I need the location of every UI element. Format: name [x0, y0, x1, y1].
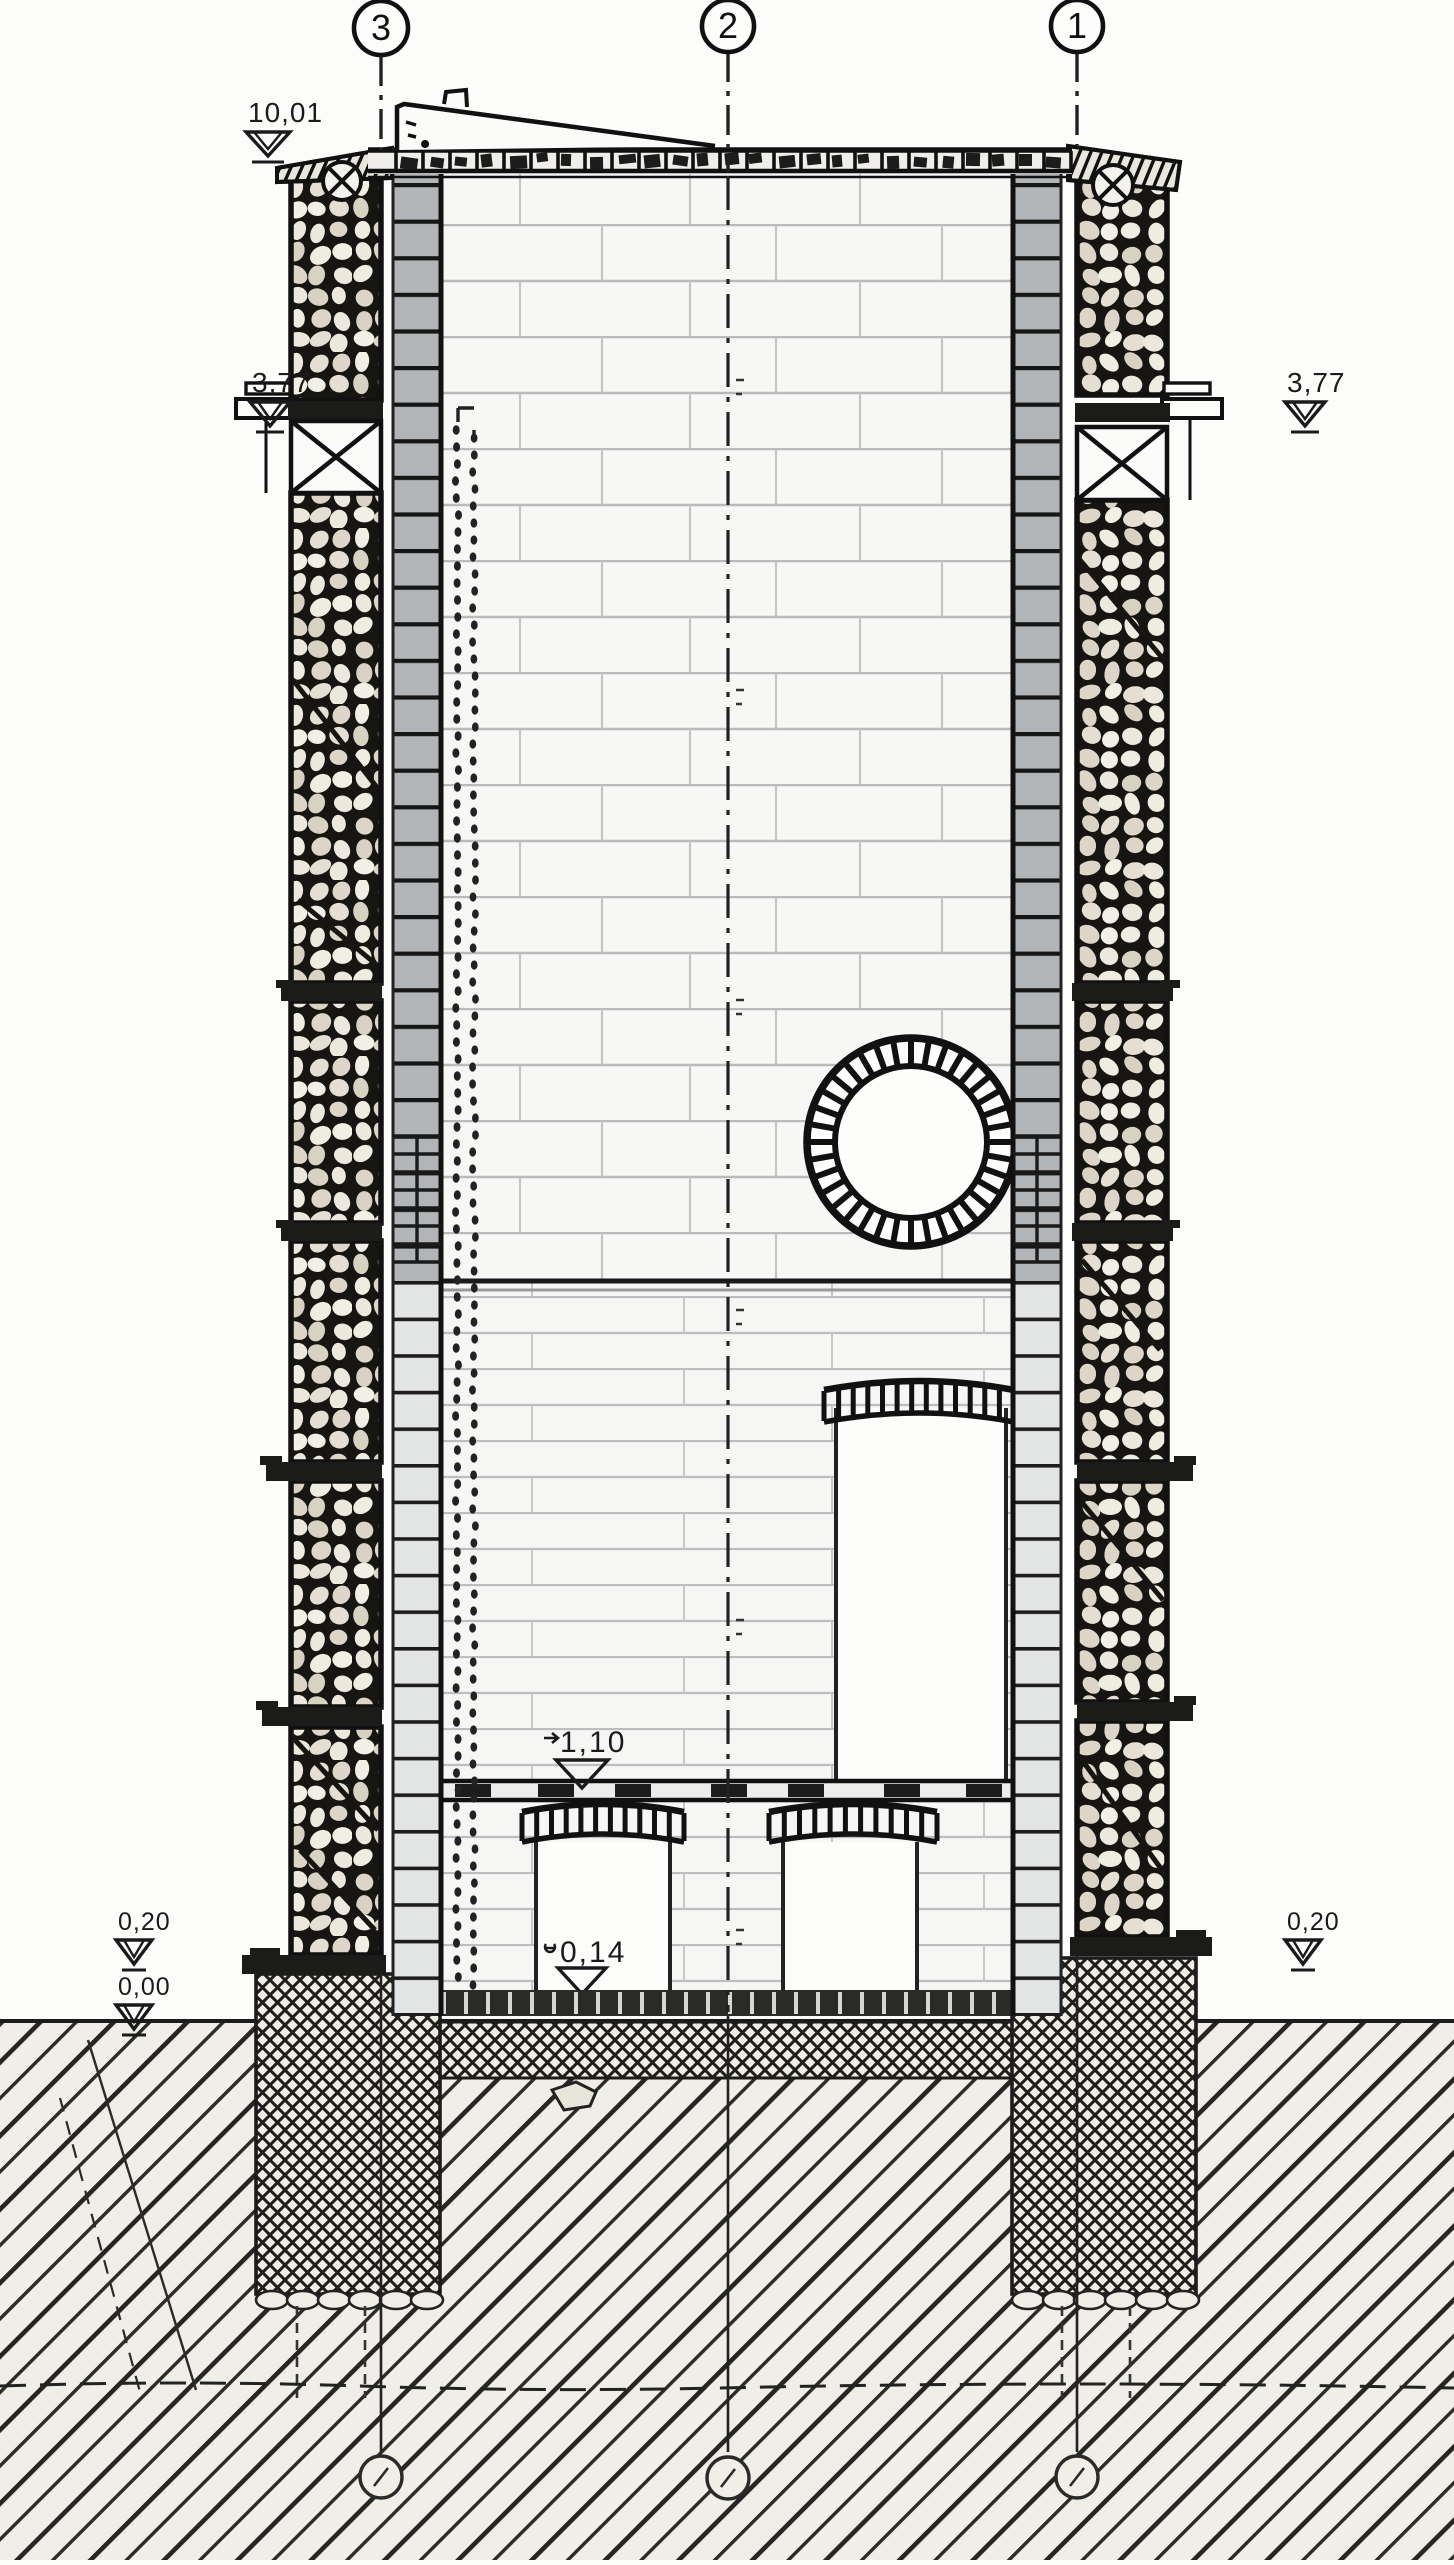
svg-text:1: 1 — [1067, 5, 1087, 46]
svg-text:1,10: 1,10 — [560, 1726, 626, 1759]
svg-text:0,14: 0,14 — [560, 1936, 626, 1969]
svg-text:0,00: 0,00 — [118, 1973, 171, 2001]
svg-text:2: 2 — [718, 5, 738, 46]
svg-text:3: 3 — [371, 7, 391, 48]
svg-text:3,77: 3,77 — [252, 367, 311, 398]
svg-text:0,20: 0,20 — [1287, 1908, 1340, 1936]
svg-text:3,77: 3,77 — [1287, 367, 1346, 398]
svg-text:10,01: 10,01 — [248, 97, 323, 128]
svg-text:0,20: 0,20 — [118, 1908, 171, 1936]
